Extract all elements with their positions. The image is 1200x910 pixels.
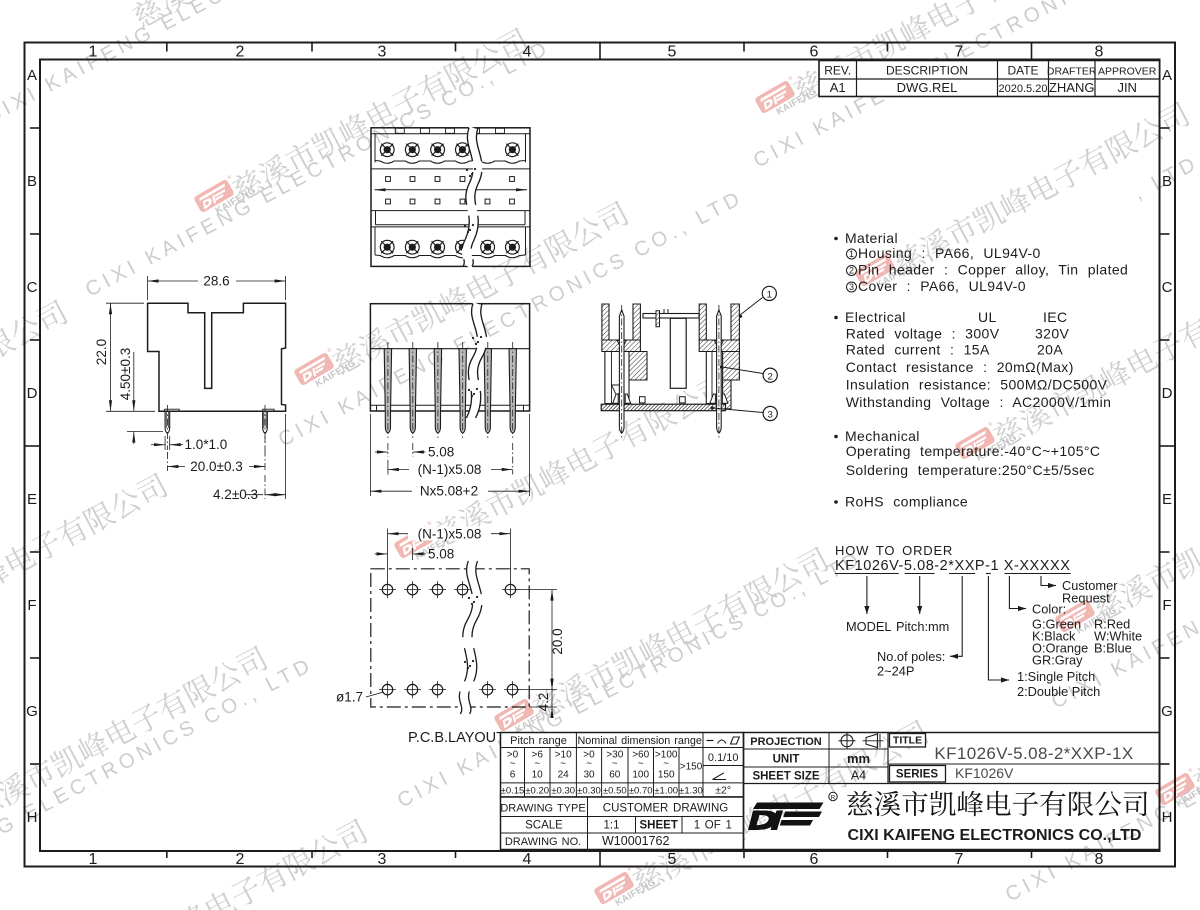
svg-text:Rated current : 15A: Rated current : 15A <box>846 342 990 358</box>
svg-text:4: 4 <box>523 851 532 868</box>
svg-text:8: 8 <box>1095 44 1104 61</box>
svg-text:Pin header : Copper alloy, Tin: Pin header : Copper alloy, Tin plated <box>858 262 1128 278</box>
svg-text:B: B <box>27 173 37 190</box>
svg-text:2: 2 <box>768 371 773 382</box>
svg-text:SHEET SIZE: SHEET SIZE <box>752 771 819 783</box>
svg-text:~: ~ <box>586 759 592 770</box>
svg-text:UNIT: UNIT <box>773 754 800 766</box>
svg-text:4.50±0.3: 4.50±0.3 <box>118 348 133 400</box>
svg-text:D: D <box>1162 385 1173 402</box>
svg-text:Insulation resistance: 500MΩ/D: Insulation resistance: 500MΩ/DC500V <box>846 377 1108 393</box>
svg-text:SCALE: SCALE <box>525 820 563 832</box>
svg-text:Request: Request <box>1062 591 1110 606</box>
svg-text:Housing : PA66, UL94V-0: Housing : PA66, UL94V-0 <box>858 245 1041 261</box>
svg-text:5.08: 5.08 <box>428 445 454 460</box>
svg-text:Soldering temperature:250°C±5/: Soldering temperature:250°C±5/5sec <box>846 462 1095 478</box>
svg-text:1.0*1.0: 1.0*1.0 <box>185 437 228 452</box>
svg-text:±0.30: ±0.30 <box>551 786 575 797</box>
svg-text:B:Blue: B:Blue <box>1094 641 1132 656</box>
svg-text:KF1026V: KF1026V <box>955 765 1014 781</box>
svg-text:20A: 20A <box>1037 342 1063 358</box>
svg-text:4: 4 <box>523 44 532 61</box>
svg-text:±1.00: ±1.00 <box>654 786 678 797</box>
svg-text:2: 2 <box>849 266 854 276</box>
svg-text:DATE: DATE <box>1007 64 1038 78</box>
svg-text:F: F <box>1162 597 1171 614</box>
svg-text:B: B <box>1162 173 1172 190</box>
svg-text:KF1026V-5.08-2*XXP-1 X-XXXXX: KF1026V-5.08-2*XXP-1 X-XXXXX <box>835 558 1070 574</box>
svg-text:30: 30 <box>583 770 595 781</box>
svg-text:±0.70: ±0.70 <box>629 786 653 797</box>
svg-text:1:Single Pitch: 1:Single Pitch <box>1017 669 1095 684</box>
svg-text:(N-1)x5.08: (N-1)x5.08 <box>418 527 482 542</box>
svg-text:Pitch range: Pitch range <box>510 735 567 747</box>
svg-text:3: 3 <box>849 282 854 292</box>
svg-text:UL: UL <box>978 309 997 325</box>
svg-text:A: A <box>1162 67 1172 84</box>
svg-text:1: 1 <box>849 249 854 259</box>
svg-text:Nx5.08+2: Nx5.08+2 <box>420 484 478 499</box>
svg-text:>150: >150 <box>680 762 703 773</box>
svg-text:±2°: ±2° <box>715 785 731 797</box>
svg-text:Material: Material <box>845 230 898 246</box>
svg-text:8: 8 <box>1095 851 1104 868</box>
svg-text:3: 3 <box>378 44 387 61</box>
svg-text:RoHS compliance: RoHS compliance <box>845 494 968 510</box>
svg-text:~: ~ <box>534 759 540 770</box>
svg-text:~: ~ <box>663 759 669 770</box>
svg-text:~: ~ <box>612 759 618 770</box>
svg-text:6: 6 <box>510 770 516 781</box>
svg-text:IEC: IEC <box>1043 309 1068 325</box>
svg-text:ø1.7: ø1.7 <box>336 690 363 705</box>
svg-text:MODEL: MODEL <box>846 619 892 634</box>
svg-text:28.6: 28.6 <box>203 274 229 289</box>
svg-text:7: 7 <box>955 851 964 868</box>
svg-text:G: G <box>1161 703 1173 720</box>
svg-text:F: F <box>27 597 36 614</box>
svg-text:REV.: REV. <box>824 64 851 78</box>
svg-text:Nominal dimension range: Nominal dimension range <box>577 735 701 747</box>
svg-text:H: H <box>27 809 38 826</box>
svg-text:2: 2 <box>236 851 245 868</box>
svg-text:320V: 320V <box>1035 326 1070 342</box>
svg-text:~: ~ <box>638 759 644 770</box>
svg-text:KF1026V-5.08-2*XXP-1X: KF1026V-5.08-2*XXP-1X <box>934 744 1133 763</box>
svg-text:Mechanical: Mechanical <box>845 428 920 444</box>
svg-text:E: E <box>1162 491 1172 508</box>
svg-text:1:1: 1:1 <box>604 820 620 832</box>
svg-text:~: ~ <box>510 759 516 770</box>
svg-text:±0.20: ±0.20 <box>525 786 549 797</box>
svg-text:1: 1 <box>767 290 772 301</box>
svg-text:mm: mm <box>847 751 870 766</box>
svg-text:DWG.REL: DWG.REL <box>897 80 958 95</box>
svg-text:E: E <box>27 491 37 508</box>
svg-text:D: D <box>27 385 38 402</box>
svg-text:PROJECTION: PROJECTION <box>750 736 822 748</box>
svg-text:10: 10 <box>532 770 544 781</box>
svg-text:C: C <box>1162 279 1173 296</box>
svg-text:A: A <box>27 67 37 84</box>
svg-text:1: 1 <box>89 44 98 61</box>
svg-text:Pitch:mm: Pitch:mm <box>896 619 949 634</box>
svg-text:No.of poles:: No.of poles: <box>877 649 945 664</box>
svg-text:1 OF 1: 1 OF 1 <box>694 820 732 832</box>
svg-text:150: 150 <box>658 770 675 781</box>
svg-text:2:Double Pitch: 2:Double Pitch <box>1017 684 1100 699</box>
svg-text:Contact resistance : 20mΩ(Max): Contact resistance : 20mΩ(Max) <box>846 359 1074 375</box>
svg-text:6: 6 <box>810 44 819 61</box>
svg-text:5: 5 <box>668 44 677 61</box>
svg-text:4.2: 4.2 <box>536 693 551 712</box>
svg-text:G: G <box>26 703 38 720</box>
svg-text:3: 3 <box>768 410 773 421</box>
svg-text:R: R <box>831 795 836 802</box>
svg-text:20.0: 20.0 <box>550 628 565 654</box>
svg-text:W10001762: W10001762 <box>602 834 669 848</box>
svg-text:24: 24 <box>558 770 570 781</box>
svg-text:3: 3 <box>378 851 387 868</box>
svg-text:JIN: JIN <box>1117 80 1137 95</box>
svg-text:GR:Gray: GR:Gray <box>1032 653 1083 668</box>
svg-text:SERIES: SERIES <box>896 769 939 781</box>
svg-text:5.08: 5.08 <box>428 546 454 561</box>
svg-text:2: 2 <box>236 44 245 61</box>
svg-text:APPROVER: APPROVER <box>1098 66 1157 78</box>
svg-text:Withstanding Voltage : AC2000V: Withstanding Voltage : AC2000V/1min <box>846 394 1112 410</box>
svg-text:Rated voltage : 300V: Rated voltage : 300V <box>846 326 1000 342</box>
svg-text:100: 100 <box>632 770 649 781</box>
svg-text:Operating temperature:-40°C~+1: Operating temperature:-40°C~+105°C <box>846 443 1101 459</box>
svg-text:ZHANG: ZHANG <box>1049 80 1095 95</box>
svg-text:Cover : PA66, UL94V-0: Cover : PA66, UL94V-0 <box>858 278 1026 294</box>
svg-text:22.0: 22.0 <box>94 339 109 365</box>
svg-text:P.C.B.LAYOUT: P.C.B.LAYOUT <box>408 730 505 746</box>
svg-text:DRAFTER: DRAFTER <box>1047 66 1097 78</box>
svg-text:DESCRIPTION: DESCRIPTION <box>886 64 968 78</box>
svg-text:±0.15: ±0.15 <box>501 786 525 797</box>
svg-text:±0.30: ±0.30 <box>577 786 601 797</box>
svg-text:6: 6 <box>810 851 819 868</box>
svg-text:DRAWING NO.: DRAWING NO. <box>505 836 581 848</box>
svg-text:7: 7 <box>955 44 964 61</box>
svg-text:SHEET: SHEET <box>640 820 678 832</box>
svg-text:5: 5 <box>668 851 677 868</box>
svg-text:CIXI KAIFENG ELECTRONICS CO.,L: CIXI KAIFENG ELECTRONICS CO.,LTD <box>848 827 1142 844</box>
svg-text:2~24P: 2~24P <box>877 664 914 679</box>
svg-text:2020.5.20: 2020.5.20 <box>999 83 1048 95</box>
svg-text:0.1/10: 0.1/10 <box>708 752 739 764</box>
svg-text:~: ~ <box>560 759 566 770</box>
svg-text:CUSTOMER DRAWING: CUSTOMER DRAWING <box>603 803 729 815</box>
svg-text:Electrical: Electrical <box>845 309 906 325</box>
svg-text:H: H <box>1162 809 1173 826</box>
svg-text:C: C <box>27 279 38 296</box>
svg-text:60: 60 <box>609 770 621 781</box>
svg-text:±0.50: ±0.50 <box>603 786 627 797</box>
svg-text:A1: A1 <box>830 80 846 95</box>
svg-text:(N-1)x5.08: (N-1)x5.08 <box>418 462 482 477</box>
svg-text:20.0±0.3: 20.0±0.3 <box>190 459 242 474</box>
svg-text:TITLE: TITLE <box>893 735 922 747</box>
svg-text:4.2±0.3: 4.2±0.3 <box>213 487 258 502</box>
svg-text:1: 1 <box>89 851 98 868</box>
svg-text:A4: A4 <box>851 769 866 783</box>
svg-text:DRAWING TYPE: DRAWING TYPE <box>500 803 585 815</box>
svg-text:HOW TO ORDER: HOW TO ORDER <box>835 543 953 558</box>
svg-text:CIXI KAIFENG ELECTRONICS CO.,: CIXI KAIFENG ELECTRONICS CO., LTD <box>0 653 317 910</box>
svg-text:±1.30: ±1.30 <box>679 786 703 797</box>
